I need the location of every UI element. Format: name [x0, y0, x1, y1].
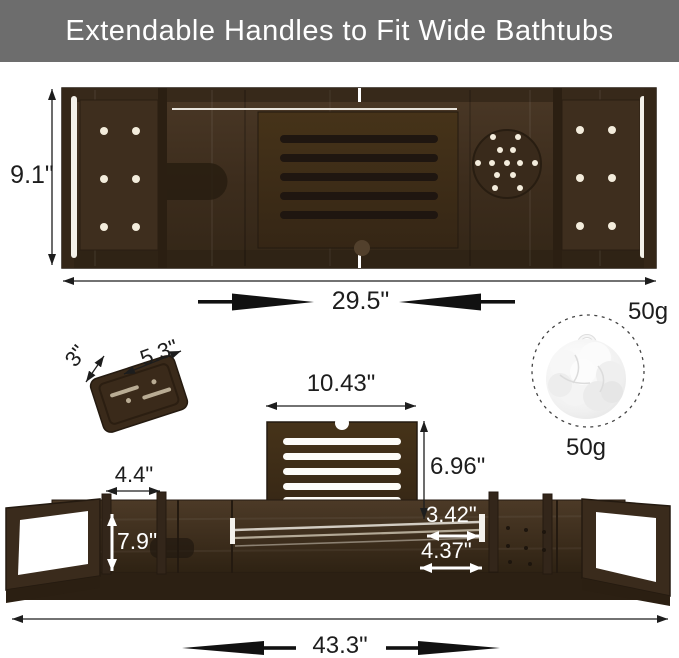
- tray-front-face: [22, 573, 652, 600]
- book-rest-height-dimension-label: 6.96": [430, 455, 485, 479]
- soap-holder-circle: [473, 130, 541, 198]
- gap-large-dimension-label: 4.37": [421, 540, 472, 562]
- left-handle-extended: [6, 499, 100, 603]
- phone-slot-recess: [167, 163, 228, 200]
- book-rest-top-view: [258, 112, 458, 256]
- book-rest-width-dimension-label: 10.43": [296, 372, 386, 396]
- tray-depth-dimension-label: 7.9": [117, 530, 157, 553]
- illustration-layer: [0, 0, 679, 658]
- bath-sponge-illustration: [532, 315, 644, 427]
- rack-slot-width-dimension-label: 4.4": [110, 464, 158, 486]
- product-dimension-infographic: Extendable Handles to Fit Wide Bathtubs: [0, 0, 679, 658]
- thumb-notch-front: [335, 416, 349, 430]
- soap-dish-illustration: [89, 354, 190, 434]
- top-height-dimension-label: 9.1": [8, 163, 56, 188]
- right-handle-top-view: [553, 88, 656, 268]
- top-tray-illustration: [62, 88, 656, 268]
- tray-split-line: [358, 88, 361, 102]
- sponge-weight-label-top: 50g: [628, 300, 668, 324]
- top-width-dimension-label: 29.5": [318, 289, 403, 314]
- sponge-weight-label-bottom: 50g: [558, 436, 614, 460]
- total-width-dimension-label: 43.3": [300, 634, 380, 658]
- thumb-notch: [354, 240, 370, 256]
- gap-small-dimension-label: 3.42": [426, 504, 477, 526]
- right-handle-extended: [582, 499, 670, 606]
